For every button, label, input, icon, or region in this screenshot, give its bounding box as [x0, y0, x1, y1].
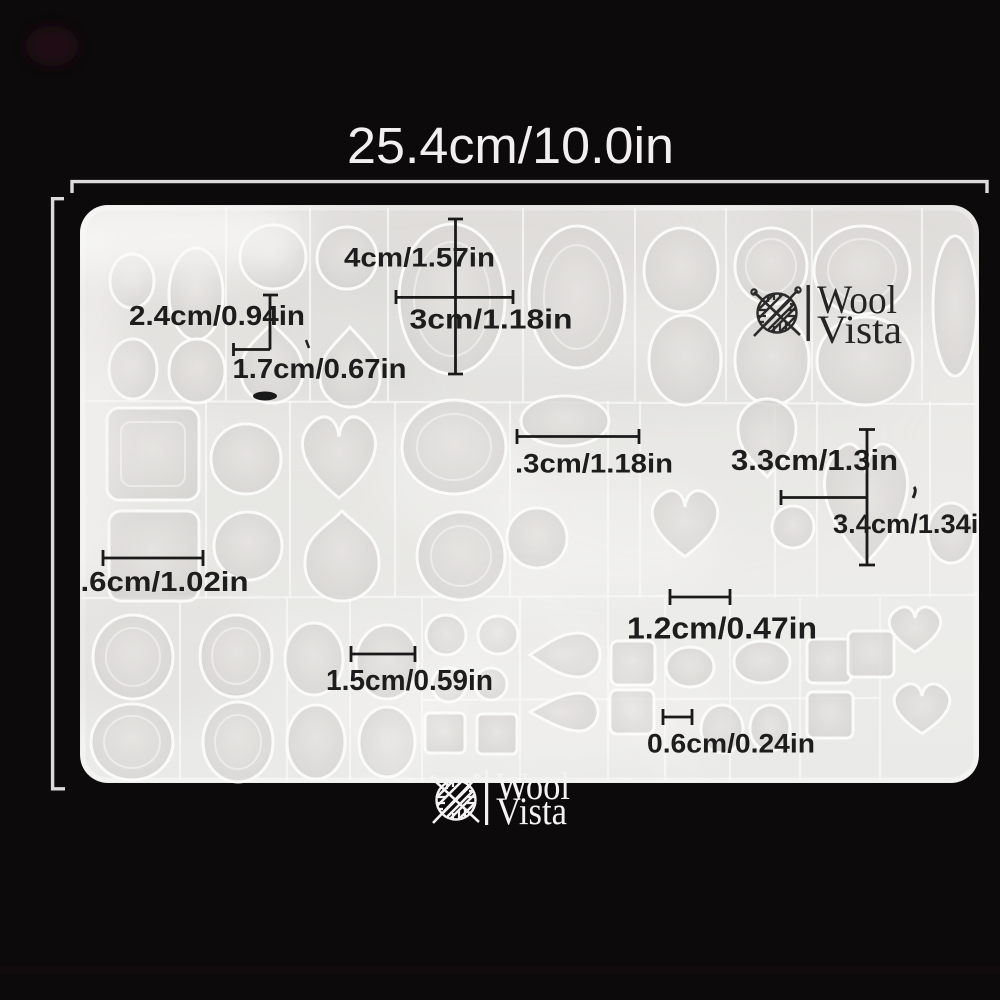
svg-text:4cm/1.57in: 4cm/1.57in — [344, 243, 495, 273]
svg-text:1.5cm/0.59in: 1.5cm/0.59in — [326, 665, 493, 697]
svg-text:3.4cm/1.34in: 3.4cm/1.34in — [833, 509, 995, 539]
svg-text:.6cm/1.02in: .6cm/1.02in — [81, 566, 249, 597]
svg-text:2.4cm/0.94in: 2.4cm/0.94in — [129, 300, 305, 331]
svg-text:0.6cm/0.24in: 0.6cm/0.24in — [647, 729, 815, 759]
svg-text:Vista: Vista — [817, 307, 902, 352]
svg-text:3.3cm/1.3in: 3.3cm/1.3in — [731, 445, 898, 477]
svg-text:.3cm/1.18in: .3cm/1.18in — [515, 449, 673, 479]
svg-text:1.7cm/0.67in: 1.7cm/0.67in — [233, 353, 407, 384]
svg-text:3cm/1.18in: 3cm/1.18in — [410, 304, 573, 335]
svg-text:1.2cm/0.47in: 1.2cm/0.47in — [627, 612, 817, 646]
svg-text:Vista: Vista — [496, 790, 567, 833]
svg-text:25.4cm/10.0in: 25.4cm/10.0in — [347, 117, 674, 174]
